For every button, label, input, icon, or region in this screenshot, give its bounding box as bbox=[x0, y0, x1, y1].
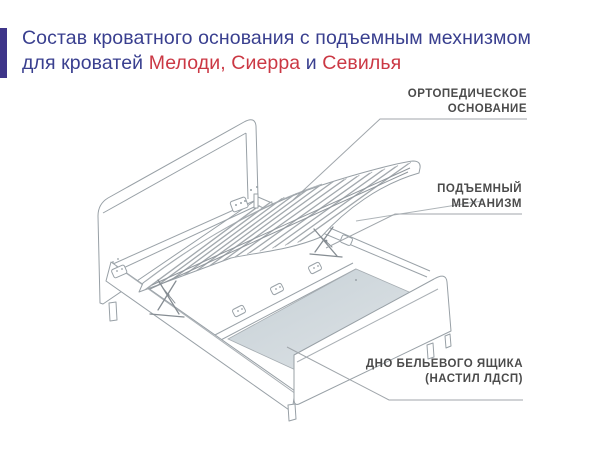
frame-leg bbox=[288, 404, 296, 421]
footboard-leg bbox=[445, 334, 451, 348]
label-lift-mechanism: ПОДЪЕМНЫЙ МЕХАНИЗМ bbox=[437, 182, 522, 211]
infographic-page: Состав кроватного основания с подъемным … bbox=[0, 0, 600, 450]
base-pin bbox=[254, 194, 258, 208]
label-orthopedic-base: ОРТОПЕДИЧЕСКОЕ ОСНОВАНИЕ bbox=[408, 87, 527, 116]
label-drawer-bottom: ДНО БЕЛЬЕВОГО ЯЩИКА (НАСТИЛ ЛДСП) bbox=[366, 357, 523, 386]
pointer-lift-mechanism bbox=[326, 214, 522, 248]
headboard-leg bbox=[109, 302, 117, 321]
